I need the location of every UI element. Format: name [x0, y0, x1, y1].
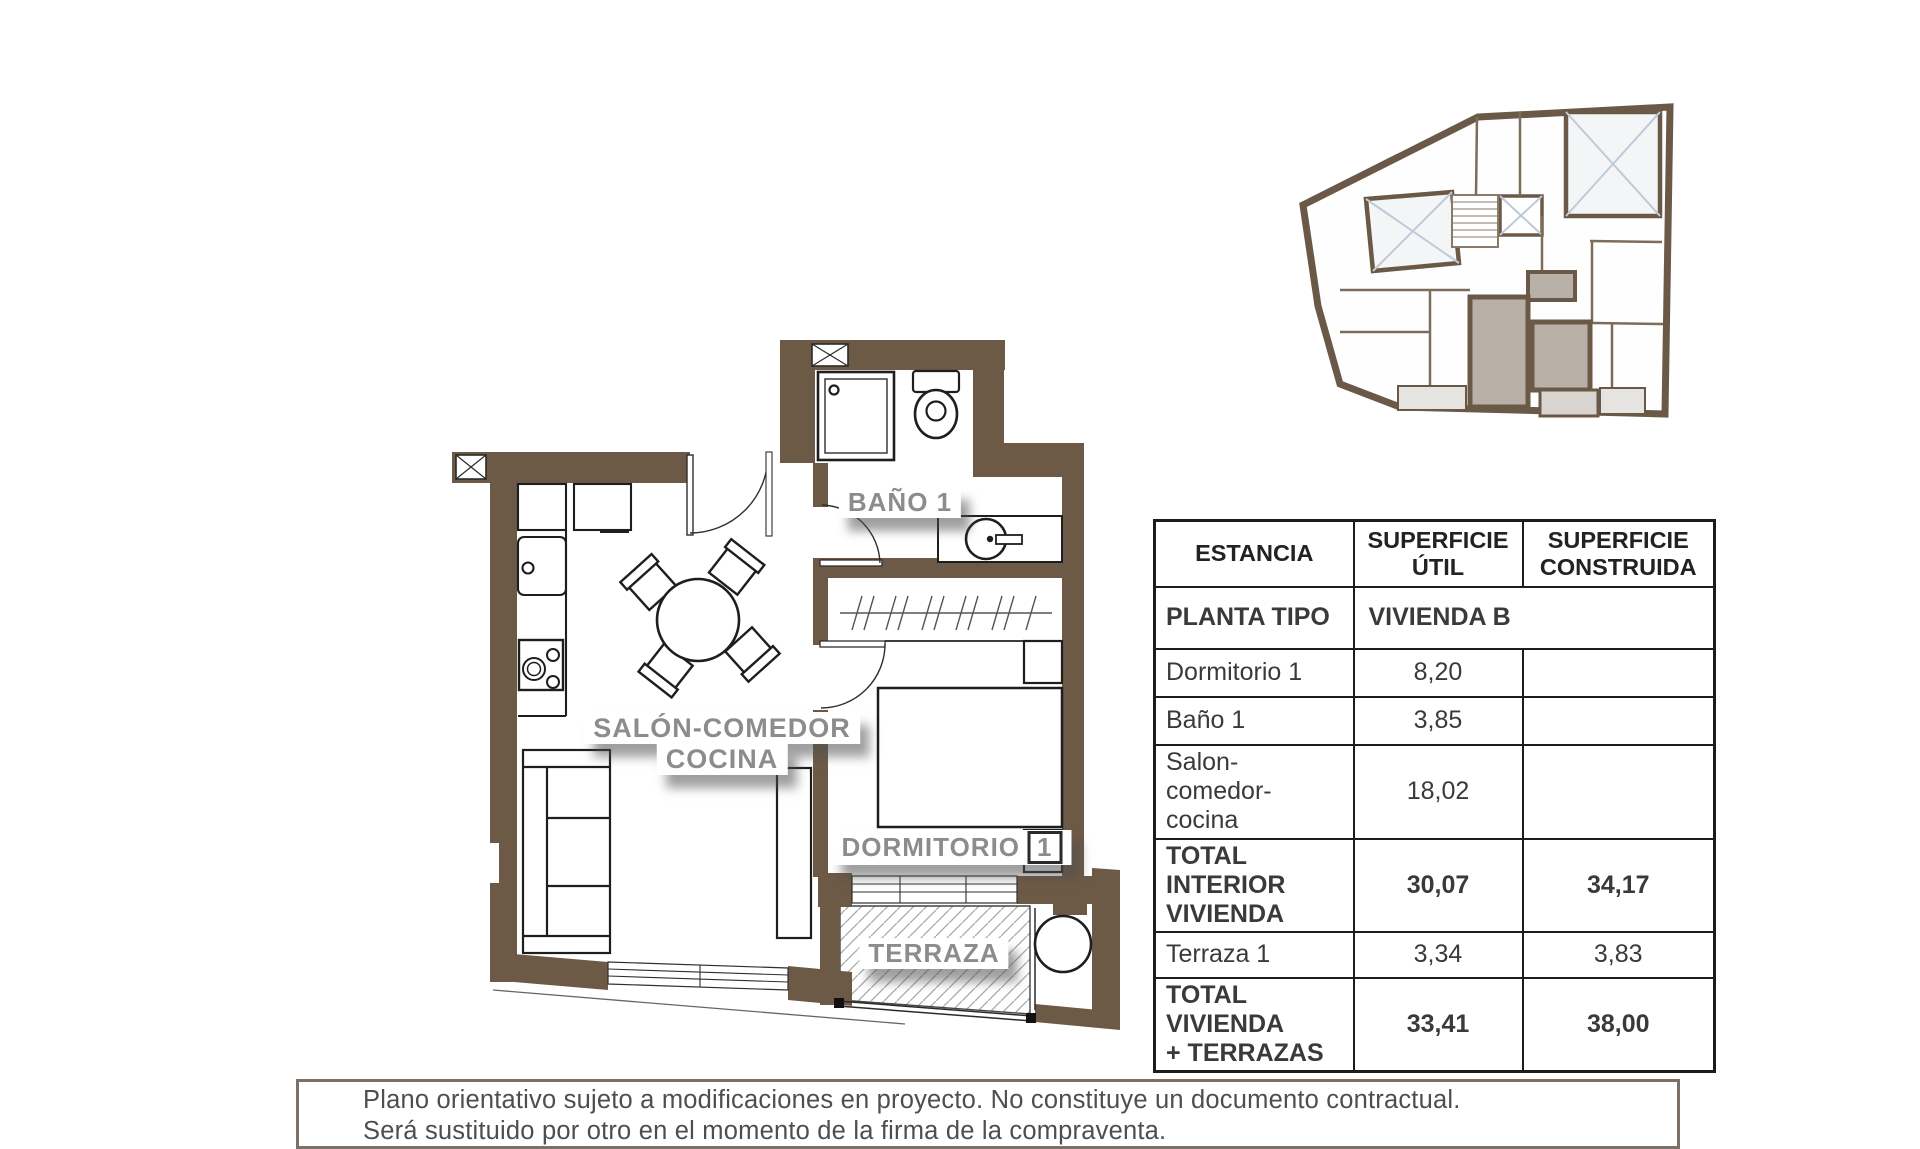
surface-areas-table: ESTANCIA SUPERFICIE ÚTIL SUPERFICIE CONS…: [1153, 519, 1716, 1073]
disclaimer-line1: Plano orientativo sujeto a modificacione…: [363, 1085, 1677, 1116]
disclaimer-line2: Será sustituido por otro en el momento d…: [363, 1116, 1677, 1147]
total-interior-row: TOTAL INTERIOR VIVIENDA 30,07 34,17: [1155, 839, 1715, 932]
row-dormitorio-util: 8,20: [1354, 649, 1523, 697]
row-dormitorio-construida: [1523, 649, 1715, 697]
basin-tap: [996, 535, 1022, 544]
planta-tipo-cell: PLANTA TIPO: [1155, 587, 1354, 649]
table-header-row: ESTANCIA SUPERFICIE ÚTIL SUPERFICIE CONS…: [1155, 521, 1715, 587]
row-dormitorio-name: Dormitorio 1: [1155, 649, 1354, 697]
bedroom-terrace-window: [852, 876, 1017, 903]
table-row: Salon- comedor- cocina 18,02: [1155, 745, 1715, 839]
dormitorio-label: DORMITORIO1: [833, 830, 1072, 865]
vivienda-cell: VIVIENDA B: [1354, 587, 1715, 649]
salon-name-line3: cocina: [1166, 806, 1343, 835]
total-interior-construida: 34,17: [1523, 839, 1715, 932]
row-salon-construida: [1523, 745, 1715, 839]
total-vivienda-name: TOTAL VIVIENDA + TERRAZAS: [1155, 978, 1354, 1072]
salon-label-line1: SALÓN-COMEDOR: [584, 712, 860, 744]
disclaimer-box: Plano orientativo sujeto a modificacione…: [296, 1079, 1680, 1149]
hob: [519, 640, 563, 690]
planta-tipo-row: PLANTA TIPO VIVIENDA B: [1155, 587, 1715, 649]
bano-label: BAÑO 1: [839, 487, 961, 518]
total-interior-line1: TOTAL INTERIOR: [1166, 842, 1343, 900]
header-estancia: ESTANCIA: [1155, 521, 1354, 587]
header-util-line1: SUPERFICIE: [1365, 527, 1512, 554]
row-bano-construida: [1523, 697, 1715, 745]
salon-window: [608, 962, 788, 990]
table-row: Dormitorio 1 8,20: [1155, 649, 1715, 697]
total-interior-line2: VIVIENDA: [1166, 900, 1343, 929]
dormitorio-label-word: DORMITORIO: [842, 832, 1021, 862]
washbasin: [938, 516, 1062, 562]
header-construida-line1: SUPERFICIE: [1534, 527, 1704, 554]
total-vivienda-util: 33,41: [1354, 978, 1523, 1072]
nightstand: [1024, 641, 1062, 683]
toilet: [913, 371, 959, 438]
wardrobe: [840, 596, 1060, 641]
salon-name-line1: Salon-: [1166, 748, 1343, 777]
shower-tray: [818, 372, 894, 460]
salon-label-line2: COCINA: [657, 743, 788, 775]
row-terraza-util: 3,34: [1354, 932, 1523, 978]
key-plan: [1303, 107, 1670, 416]
staircase: [1452, 195, 1498, 247]
bath-door-leaf: [820, 560, 882, 566]
entry-door-leaf: [687, 455, 693, 535]
left-wall-jog: [490, 843, 499, 883]
table-row: Baño 1 3,85: [1155, 697, 1715, 745]
row-terraza-name: Terraza 1: [1155, 932, 1354, 978]
total-vivienda-row: TOTAL VIVIENDA + TERRAZAS 33,41 38,00: [1155, 978, 1715, 1072]
row-terraza-construida: 3,83: [1523, 932, 1715, 978]
header-superficie-util: SUPERFICIE ÚTIL: [1354, 521, 1523, 587]
dormitorio-label-number: 1: [1027, 831, 1062, 864]
row-salon-util: 18,02: [1354, 745, 1523, 839]
row-bano-name: Baño 1: [1155, 697, 1354, 745]
floor-plan-sheet: BAÑO 1 SALÓN-COMEDOR COCINA DORMITORIO1 …: [0, 0, 1920, 1140]
table-row: Terraza 1 3,34 3,83: [1155, 932, 1715, 978]
dining-set: [620, 539, 779, 697]
total-vivienda-line2: + TERRAZAS: [1166, 1039, 1343, 1068]
entry-door-frame: [766, 452, 772, 536]
sofa: [523, 750, 610, 953]
header-construida-line2: CONSTRUIDA: [1534, 554, 1704, 581]
bed: [878, 688, 1062, 827]
total-vivienda-construida: 38,00: [1523, 978, 1715, 1072]
row-bano-util: 3,85: [1354, 697, 1523, 745]
round-table: [657, 579, 739, 661]
entry-door-arc: [690, 455, 768, 533]
header-util-line2: ÚTIL: [1365, 554, 1512, 581]
apartment-plan: [452, 340, 1120, 1030]
sink-tap: [523, 563, 534, 574]
total-interior-util: 30,07: [1354, 839, 1523, 932]
tv-cabinet: [777, 768, 811, 938]
bedroom-door-arc: [821, 644, 885, 708]
terraza-label: TERRAZA: [859, 938, 1008, 969]
total-interior-name: TOTAL INTERIOR VIVIENDA: [1155, 839, 1354, 932]
header-superficie-construida: SUPERFICIE CONSTRUIDA: [1523, 521, 1715, 587]
total-vivienda-line1: TOTAL VIVIENDA: [1166, 981, 1343, 1039]
water-heater: [1035, 916, 1091, 972]
shower-drain: [830, 386, 839, 395]
salon-name-line2: comedor-: [1166, 777, 1343, 806]
row-salon-name: Salon- comedor- cocina: [1155, 745, 1354, 839]
bedroom-door-leaf: [820, 641, 885, 647]
